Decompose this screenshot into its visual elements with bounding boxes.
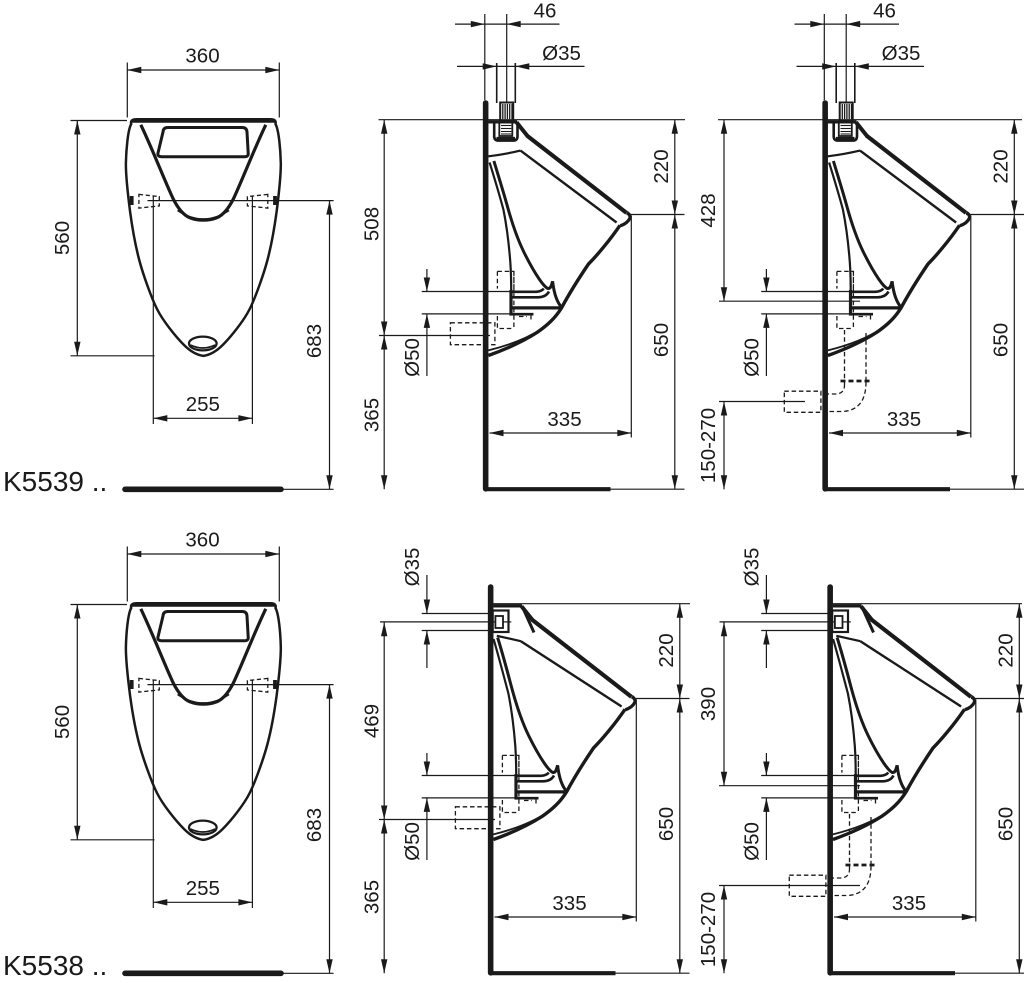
svg-text:469: 469 (361, 704, 384, 738)
svg-text:650: 650 (655, 807, 678, 841)
svg-text:255: 255 (186, 393, 220, 416)
svg-text:220: 220 (650, 149, 673, 183)
svg-text:Ø35: Ø35 (740, 548, 763, 587)
svg-text:Ø50: Ø50 (740, 338, 763, 377)
svg-text:650: 650 (650, 323, 673, 357)
svg-text:Ø50: Ø50 (740, 822, 763, 861)
svg-text:K5538 ..: K5538 .. (3, 950, 107, 981)
svg-text:335: 335 (892, 892, 926, 915)
svg-text:508: 508 (361, 207, 384, 241)
svg-text:150-270: 150-270 (697, 408, 720, 483)
svg-text:220: 220 (655, 633, 678, 667)
svg-text:683: 683 (303, 324, 326, 358)
svg-text:Ø35: Ø35 (542, 42, 581, 65)
svg-text:650: 650 (994, 807, 1017, 841)
svg-text:365: 365 (361, 880, 384, 914)
svg-text:Ø35: Ø35 (401, 548, 424, 587)
svg-text:360: 360 (185, 45, 219, 68)
svg-text:335: 335 (547, 408, 581, 431)
svg-text:150-270: 150-270 (697, 892, 720, 967)
svg-text:220: 220 (994, 633, 1017, 667)
svg-text:560: 560 (51, 221, 74, 255)
svg-text:683: 683 (303, 808, 326, 842)
svg-text:Ø35: Ø35 (882, 42, 921, 65)
svg-text:220: 220 (989, 149, 1012, 183)
svg-text:Ø50: Ø50 (401, 822, 424, 861)
svg-text:390: 390 (697, 687, 720, 721)
svg-text:255: 255 (186, 877, 220, 900)
svg-text:46: 46 (534, 0, 557, 23)
svg-text:Ø50: Ø50 (401, 338, 424, 377)
svg-text:K5539 ..: K5539 .. (3, 466, 107, 497)
svg-text:650: 650 (989, 323, 1012, 357)
svg-text:360: 360 (185, 529, 219, 552)
svg-text:46: 46 (873, 0, 896, 23)
svg-text:428: 428 (697, 193, 720, 227)
svg-text:335: 335 (887, 408, 921, 431)
svg-text:560: 560 (51, 705, 74, 739)
svg-text:335: 335 (552, 892, 586, 915)
svg-text:365: 365 (361, 398, 384, 432)
